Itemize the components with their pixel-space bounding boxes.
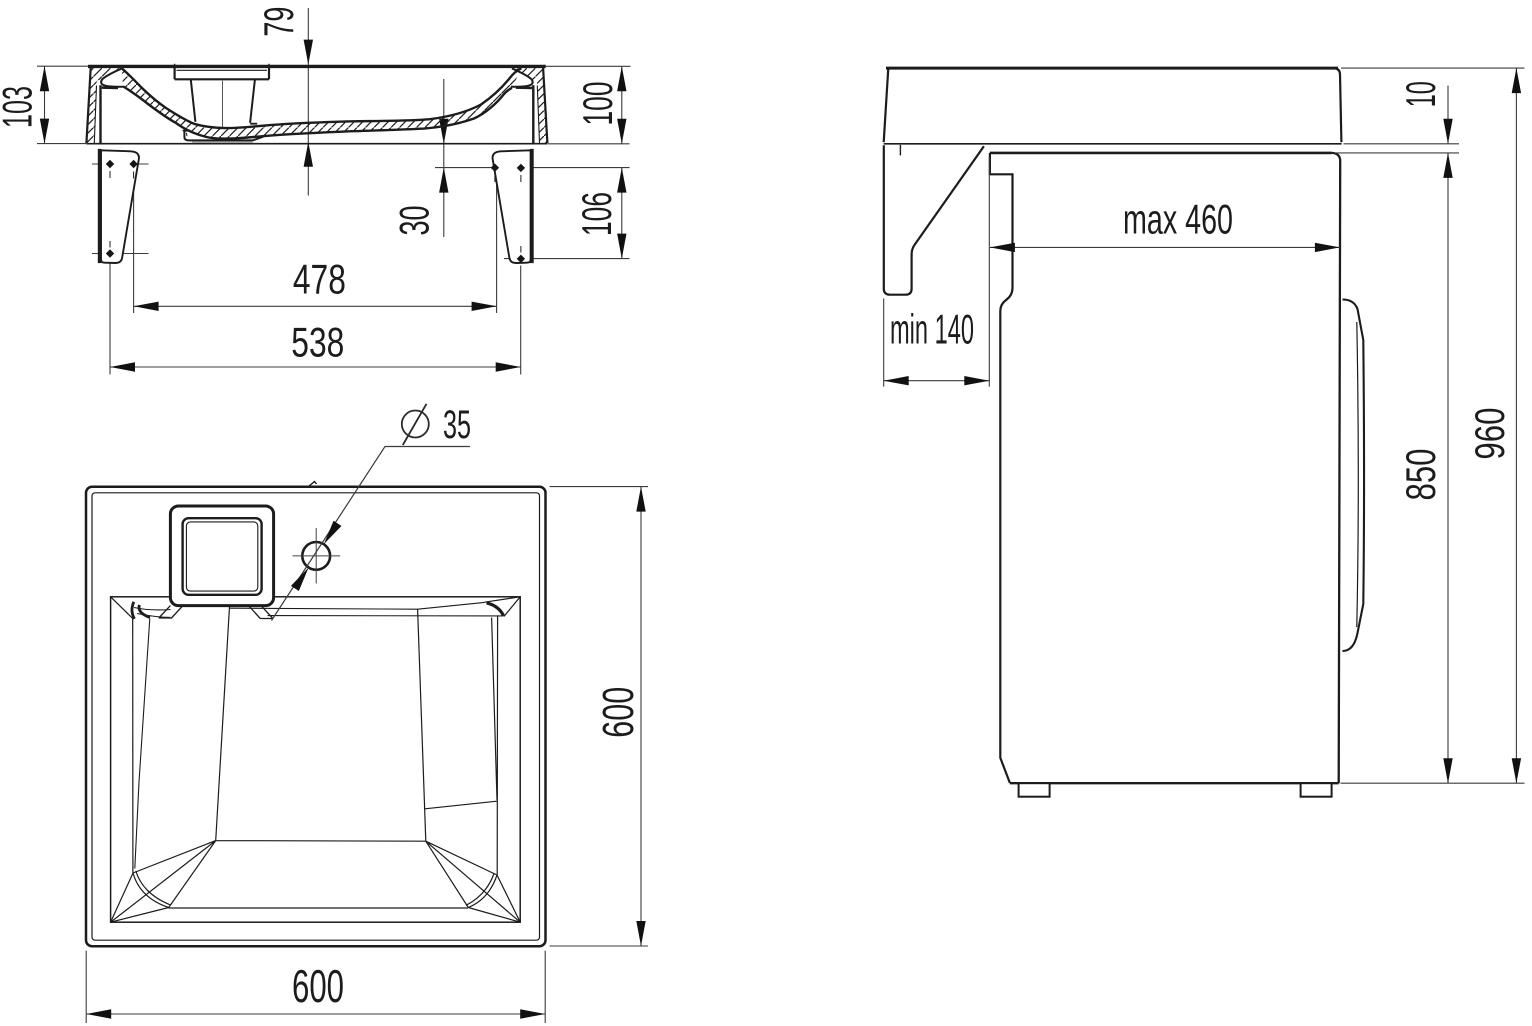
svg-text:max 460: max 460 — [1123, 196, 1233, 243]
svg-text:600: 600 — [292, 960, 344, 1012]
svg-text:106: 106 — [573, 192, 620, 236]
svg-text:600: 600 — [594, 687, 643, 738]
svg-text:35: 35 — [443, 403, 471, 447]
svg-text:103: 103 — [0, 86, 41, 128]
svg-text:min 140: min 140 — [890, 306, 974, 353]
svg-text:538: 538 — [291, 319, 344, 366]
svg-text:30: 30 — [390, 206, 437, 236]
svg-text:10: 10 — [1397, 81, 1444, 107]
svg-text:850: 850 — [1397, 449, 1444, 501]
svg-text:100: 100 — [574, 82, 621, 126]
svg-text:960: 960 — [1466, 408, 1513, 460]
svg-text:478: 478 — [293, 256, 346, 303]
svg-text:79: 79 — [255, 7, 302, 37]
